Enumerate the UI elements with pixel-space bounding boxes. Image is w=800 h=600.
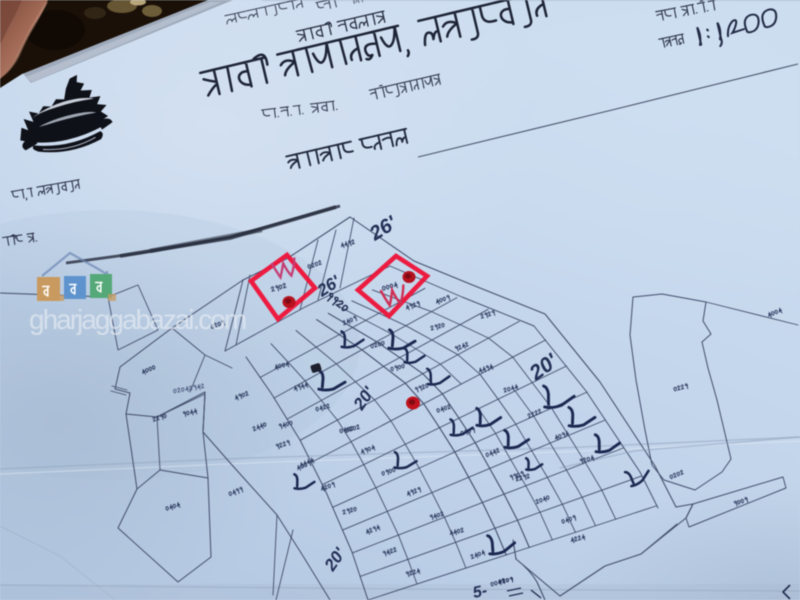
svg-text:gharjaggabazai.com: gharjaggabazai.com (29, 304, 246, 335)
